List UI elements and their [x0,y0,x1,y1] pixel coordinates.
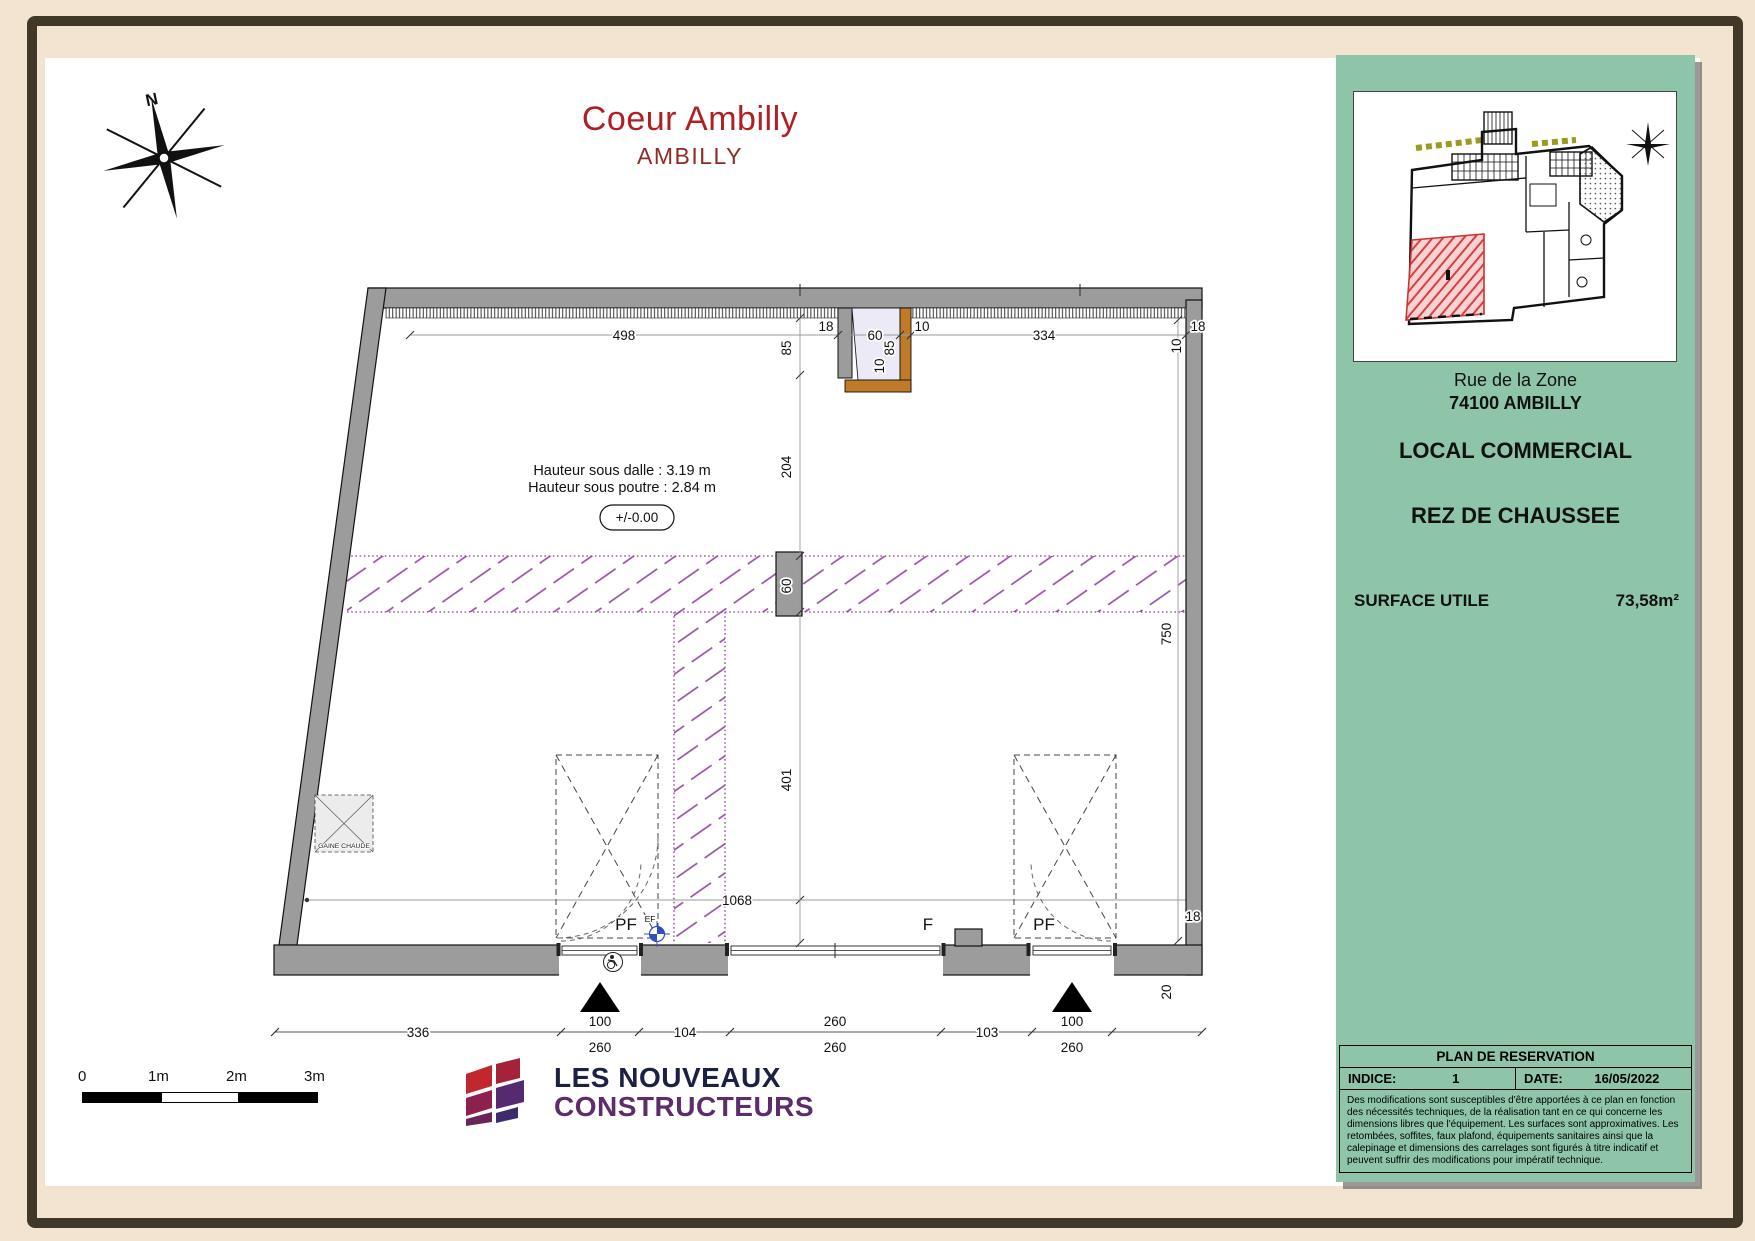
scale-tick-2m: 2m [226,1068,247,1085]
ef-survey-point-icon [644,921,670,947]
floor-plan: GAINE CHAUDE [240,250,1240,1080]
scale-bar-strip [82,1092,318,1103]
scale-tick-1m: 1m [148,1068,169,1085]
dim-door1-width: 100 [589,1014,612,1029]
scale-tick-3m: 3m [304,1068,325,1085]
entrance-marker-left [580,982,620,1012]
beam-reservation-strip [674,612,725,943]
dim-85-v: 85 [779,340,794,355]
dim-750: 750 [1159,623,1174,646]
key-plan [1353,91,1677,362]
dim-60-niche: 60 [867,328,882,343]
compass-rose-icon: N [92,78,237,223]
niche [838,308,911,392]
dim-door2-height: 260 [1061,1040,1084,1055]
project-title: Coeur Ambilly [440,100,940,139]
date-cell: DATE: 16/05/2022 [1515,1068,1691,1089]
disclaimer-text: Des modifications sont susceptibles d'êt… [1340,1090,1691,1172]
dim-18-bottomright: 18 [1185,909,1200,924]
dim-18-top: 18 [818,319,833,334]
dim-10-niche-a: 10 [914,319,929,334]
date-value: 16/05/2022 [1563,1071,1691,1086]
pilaster [955,929,982,946]
gaine-chaude-label: GAINE CHAUDE [318,843,370,850]
reserved-zone-left [556,755,658,941]
table-title: PLAN DE RESERVATION [1340,1046,1691,1068]
openings [557,941,1118,978]
label-pf-left: PF [615,915,637,934]
dim-85-niche: 85 [882,340,897,355]
date-label: DATE: [1524,1071,1563,1086]
reservation-table: PLAN DE RESERVATION INDICE: 1 DATE: 16/0… [1339,1045,1692,1173]
wall-lining-hatch-left [386,308,838,318]
entrance-marker-right [1052,982,1092,1012]
scale-bar: 0 1m 2m 3m [76,1068,326,1108]
title-panel: Rue de la Zone 74100 AMBILLY LOCAL COMME… [1336,55,1695,1182]
dim-104: 104 [674,1025,697,1040]
height-note-2: Hauteur sous poutre : 2.84 m [528,480,716,496]
walls [274,288,1202,975]
dim-60-v: 60 [779,578,794,593]
key-plan-unit-highlight [1406,234,1484,320]
dim-1068: 1068 [722,893,752,908]
company-logo: LES NOUVEAUX CONSTRUCTEURS [462,1058,814,1126]
dim-336: 336 [407,1025,430,1040]
address-street: Rue de la Zone [1336,370,1695,391]
dim-10-niche-b: 10 [872,358,887,373]
dim-401-v: 401 [779,769,794,792]
company-logo-icon [462,1058,542,1126]
surface-label: SURFACE UTILE [1354,591,1489,611]
dim-103: 103 [976,1025,999,1040]
dim-chain-vertical [796,314,804,947]
dim-20: 20 [1159,984,1174,999]
unit-type: LOCAL COMMERCIAL [1336,438,1695,464]
wall-lining-hatch-right [911,308,1186,318]
logo-line-1: LES NOUVEAUX [554,1063,814,1092]
dim-chain-right [1174,316,1182,945]
level-label: +/-0.00 [616,510,658,525]
height-note-1: Hauteur sous dalle : 3.19 m [533,463,710,479]
gaine-chaude-box: GAINE CHAUDE [315,795,373,852]
scale-tick-0: 0 [78,1068,86,1085]
dim-door2-width: 100 [1061,1014,1084,1029]
project-city: AMBILLY [440,143,940,170]
niche-door-panel [900,308,911,392]
dim-204-v: 204 [779,455,794,478]
address-city: 74100 AMBILLY [1336,393,1695,414]
wheelchair-icon [604,953,623,972]
dim-window-width: 260 [824,1014,847,1029]
dim-10-topright: 10 [1169,338,1184,353]
dim-window-height: 260 [824,1040,847,1055]
logo-line-2: CONSTRUCTEURS [554,1092,814,1121]
label-ef: EF [645,914,656,924]
reserved-zone-right [1014,755,1116,941]
dim-498: 498 [613,328,636,343]
label-pf-right: PF [1033,915,1055,934]
label-f: F [923,915,933,934]
surface-value: 73,58m² [1616,591,1679,611]
dim-18-topright: 18 [1190,319,1205,334]
indice-cell: INDICE: 1 [1340,1068,1515,1089]
dim-334: 334 [1033,328,1056,343]
soffit-reservation-band [347,556,1186,612]
floor-level: REZ DE CHAUSSEE [1336,503,1695,529]
plan-sheet: N Coeur Ambilly AMBILLY [0,0,1755,1241]
indice-label: INDICE: [1348,1071,1396,1086]
key-plan-compass-icon [1626,122,1670,166]
dim-door1-height: 260 [589,1040,612,1055]
indice-value: 1 [1396,1071,1515,1086]
